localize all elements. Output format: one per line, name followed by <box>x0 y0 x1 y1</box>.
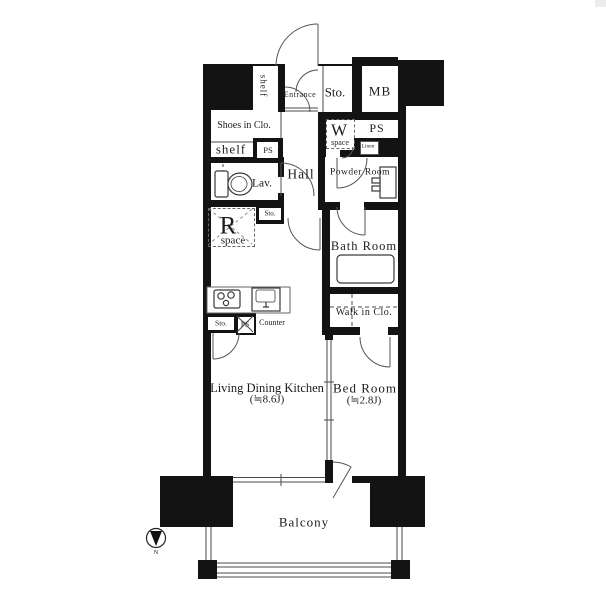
label-storage-top: Sto. <box>325 86 346 99</box>
compass <box>147 529 166 548</box>
toilet-tank <box>215 171 228 197</box>
label-meter-box: MB <box>369 85 391 98</box>
door-arc <box>342 147 353 158</box>
kitchen-sink-basin <box>256 290 275 302</box>
sliding-partition <box>324 340 334 460</box>
label-refrigerator-space-word: space <box>221 236 245 247</box>
bedroom-door <box>360 337 390 367</box>
label-shelf: shelf <box>216 143 246 156</box>
door-arc <box>296 70 318 92</box>
label-pipe-shaft-hall: PS <box>263 146 272 155</box>
label-bath-room: Bath Room <box>331 240 397 253</box>
label-powder-room: Powder Room <box>330 168 390 178</box>
stove-burner <box>223 300 228 305</box>
label-bed-room-size: (≒2.8J) <box>347 396 382 407</box>
balcony-window <box>233 474 325 486</box>
balcony-side-rail <box>206 527 402 560</box>
balcony-door <box>333 462 351 498</box>
vanity-faucet <box>372 186 380 191</box>
label-entrance: Entrance <box>284 91 316 99</box>
entrance-door-arc <box>276 24 318 66</box>
label-ldk-size: (≒8.6J) <box>250 395 285 406</box>
label-washer-space-word: space <box>331 139 349 147</box>
label-shelf-vertical: shelf <box>259 75 268 98</box>
balcony-rail <box>217 563 391 577</box>
label-living-dining-kitchen: Living Dining Kitchen <box>210 382 324 395</box>
label-hall: Hall <box>287 167 314 181</box>
label-walk-in-closet: Walk in Clo. <box>336 308 393 318</box>
stove-burner <box>218 293 224 299</box>
label-compass-north: N <box>154 550 159 557</box>
label-lavatory: Lav. <box>252 178 272 190</box>
vanity-faucet <box>372 178 380 183</box>
label-bed-room: Bed Room <box>333 382 397 395</box>
label-pipe-shaft-upper: PS <box>369 122 384 134</box>
toilet-bowl-inner <box>231 177 247 192</box>
stove-burner <box>228 292 234 298</box>
label-linen: Linen <box>362 144 375 150</box>
label-pipe-shaft-kitchen: PS <box>241 320 249 328</box>
hall-ldk-door <box>288 218 320 250</box>
bath-door <box>337 207 365 235</box>
bathtub <box>337 255 394 283</box>
entrance-step-line <box>285 108 318 111</box>
label-counter: Counter <box>259 319 285 327</box>
label-shoes-in-closet: Shoes in Clo. <box>217 121 271 131</box>
label-storage-kitchen: Sto. <box>215 319 227 327</box>
floor-plan: shelf Entrance Sto. MB Shoes in Clo. she… <box>0 0 606 610</box>
label-storage-hall: Sto. <box>264 211 275 218</box>
label-washer-space-letter: W <box>331 122 347 139</box>
kitchen-door <box>213 333 239 359</box>
label-balcony: Balcony <box>279 516 329 529</box>
